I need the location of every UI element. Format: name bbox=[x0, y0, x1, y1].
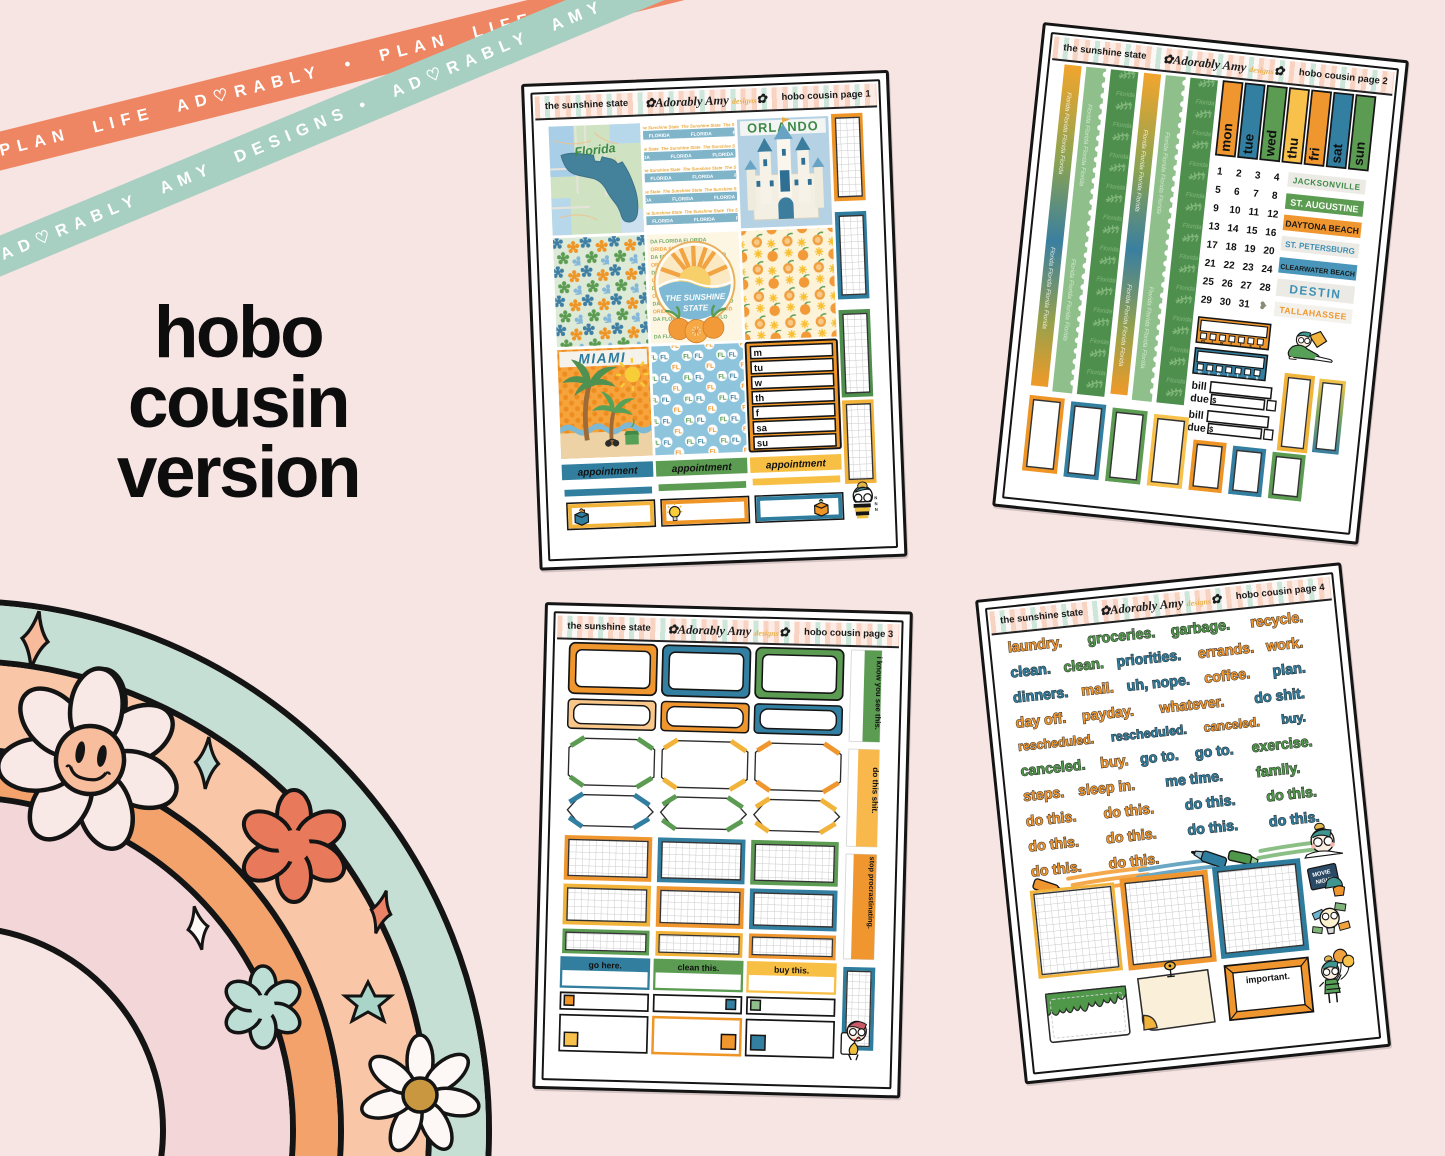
svg-text:6: 6 bbox=[1233, 187, 1240, 199]
svg-text:23: 23 bbox=[1242, 262, 1255, 274]
svg-text:bill: bill bbox=[1188, 408, 1204, 422]
svg-text:11: 11 bbox=[1248, 207, 1260, 219]
svg-text:do this shit.: do this shit. bbox=[870, 767, 880, 813]
svg-text:canceled.: canceled. bbox=[1020, 757, 1086, 780]
svg-text:21: 21 bbox=[1204, 258, 1217, 270]
svg-text:bill: bill bbox=[1191, 379, 1207, 393]
svg-text:su: su bbox=[757, 438, 769, 450]
svg-text:steps.: steps. bbox=[1022, 785, 1065, 805]
svg-text:appointment: appointment bbox=[577, 465, 638, 478]
svg-text:FLORIDA: FLORIDA bbox=[650, 175, 672, 182]
svg-text:errands.: errands. bbox=[1197, 640, 1255, 662]
svg-text:groceries.: groceries. bbox=[1087, 625, 1156, 648]
svg-text:canceled.: canceled. bbox=[1203, 715, 1261, 735]
svg-text:19: 19 bbox=[1244, 243, 1257, 255]
svg-text:day off.: day off. bbox=[1015, 710, 1067, 731]
svg-text:4: 4 bbox=[1273, 172, 1280, 184]
svg-text:wed: wed bbox=[1262, 129, 1280, 158]
svg-text:w: w bbox=[753, 378, 762, 389]
svg-text:me time.: me time. bbox=[1165, 769, 1224, 791]
svg-text:whatever.: whatever. bbox=[1158, 694, 1225, 717]
svg-text:FLORIDA: FLORIDA bbox=[692, 174, 714, 181]
svg-text:coffee.: coffee. bbox=[1204, 666, 1251, 687]
svg-text:FLORIDA: FLORIDA bbox=[691, 131, 713, 138]
svg-text:29: 29 bbox=[1200, 294, 1213, 306]
svg-text:12: 12 bbox=[1267, 209, 1280, 221]
svg-text:clean this.: clean this. bbox=[677, 962, 719, 973]
svg-text:31: 31 bbox=[1238, 298, 1251, 310]
svg-text:25: 25 bbox=[1202, 276, 1215, 288]
svg-text:5: 5 bbox=[1215, 185, 1222, 197]
svg-text:tue: tue bbox=[1240, 132, 1257, 154]
svg-text:buy.: buy. bbox=[1099, 753, 1129, 772]
svg-text:28: 28 bbox=[1259, 282, 1272, 294]
svg-text:m: m bbox=[1201, 338, 1205, 343]
svg-text:17: 17 bbox=[1206, 239, 1219, 251]
svg-text:18: 18 bbox=[1225, 241, 1238, 253]
svg-text:appointment: appointment bbox=[672, 462, 733, 475]
svg-text:plan.: plan. bbox=[1272, 660, 1307, 679]
svg-text:NO: NO bbox=[874, 501, 878, 506]
svg-text:NO: NO bbox=[875, 507, 878, 512]
svg-text:1: 1 bbox=[1216, 166, 1223, 178]
svg-text:go to.: go to. bbox=[1194, 742, 1234, 762]
svg-text:m: m bbox=[1198, 369, 1202, 374]
svg-text:tu: tu bbox=[754, 363, 764, 374]
svg-text:do this.: do this. bbox=[1187, 818, 1239, 839]
svg-text:FLORIDA: FLORIDA bbox=[712, 152, 734, 159]
svg-text:go to.: go to. bbox=[1139, 748, 1179, 768]
svg-text:exercise.: exercise. bbox=[1251, 734, 1313, 756]
svg-text:family.: family. bbox=[1255, 761, 1301, 782]
svg-text:clean.: clean. bbox=[1063, 656, 1105, 676]
svg-text:do this.: do this. bbox=[1268, 809, 1320, 830]
svg-text:due: due bbox=[1187, 421, 1207, 435]
svg-text:sleep in.: sleep in. bbox=[1077, 778, 1135, 800]
svg-text:laundry.: laundry. bbox=[1007, 635, 1063, 657]
svg-text:9: 9 bbox=[1213, 203, 1220, 215]
svg-text:work.: work. bbox=[1264, 635, 1304, 655]
svg-text:22: 22 bbox=[1223, 260, 1236, 272]
svg-text:26: 26 bbox=[1221, 278, 1234, 290]
svg-text:recycle.: recycle. bbox=[1249, 610, 1303, 632]
svg-text:24: 24 bbox=[1261, 264, 1274, 276]
svg-text:stop procrastinating.: stop procrastinating. bbox=[866, 856, 877, 929]
svg-text:dinners.: dinners. bbox=[1012, 685, 1069, 707]
svg-text:FLORIDA: FLORIDA bbox=[694, 217, 716, 224]
svg-text:priorities.: priorities. bbox=[1116, 648, 1182, 671]
svg-text:due: due bbox=[1190, 392, 1210, 406]
svg-text:mail.: mail. bbox=[1080, 680, 1114, 699]
svg-text:FLORIDA: FLORIDA bbox=[714, 194, 736, 201]
svg-text:do this.: do this. bbox=[1184, 793, 1236, 814]
svg-text:sat: sat bbox=[1328, 142, 1345, 164]
svg-text:do shit.: do shit. bbox=[1253, 686, 1305, 707]
svg-text:FLORIDA: FLORIDA bbox=[649, 133, 671, 140]
svg-text:7: 7 bbox=[1252, 189, 1259, 201]
svg-text:go here.: go here. bbox=[588, 960, 622, 971]
svg-text:appointment: appointment bbox=[766, 458, 827, 471]
svg-text:buy this.: buy this. bbox=[774, 965, 809, 976]
svg-text:3: 3 bbox=[1254, 170, 1261, 182]
svg-text:m: m bbox=[753, 348, 762, 359]
svg-text:buy.: buy. bbox=[1281, 710, 1307, 727]
svg-text:rescheduled.: rescheduled. bbox=[1017, 732, 1094, 754]
svg-text:uh, nope.: uh, nope. bbox=[1126, 672, 1191, 695]
svg-text:do this.: do this. bbox=[1025, 809, 1077, 830]
svg-text:FLORIDA: FLORIDA bbox=[672, 196, 694, 203]
svg-text:15: 15 bbox=[1246, 225, 1259, 237]
svg-text:do this.: do this. bbox=[1266, 784, 1318, 805]
svg-text:payday.: payday. bbox=[1081, 703, 1134, 724]
svg-text:do this.: do this. bbox=[1103, 801, 1155, 822]
svg-text:❥: ❥ bbox=[1258, 301, 1267, 313]
svg-text:garbage.: garbage. bbox=[1170, 617, 1231, 639]
svg-text:FLORIDA: FLORIDA bbox=[670, 153, 692, 160]
svg-text:th: th bbox=[755, 393, 765, 404]
svg-text:STATE: STATE bbox=[683, 303, 709, 313]
svg-text:MIAMI: MIAMI bbox=[578, 349, 626, 367]
svg-text:do this.: do this. bbox=[1028, 834, 1080, 855]
svg-text:8: 8 bbox=[1271, 191, 1278, 203]
svg-text:2: 2 bbox=[1235, 168, 1242, 180]
svg-text:16: 16 bbox=[1265, 227, 1278, 239]
svg-text:The Sunshine State: The Sunshine State bbox=[704, 186, 744, 193]
svg-text:clean.: clean. bbox=[1010, 661, 1052, 681]
svg-text:FLORIDA: FLORIDA bbox=[652, 218, 674, 225]
svg-text:mon: mon bbox=[1218, 122, 1236, 152]
svg-text:13: 13 bbox=[1208, 221, 1221, 233]
svg-text:rescheduled.: rescheduled. bbox=[1110, 722, 1187, 744]
svg-text:fri: fri bbox=[1306, 147, 1322, 162]
svg-text:10: 10 bbox=[1229, 205, 1242, 217]
svg-text:The Sunshine State: The Sunshine State bbox=[703, 143, 743, 150]
svg-text:NO: NO bbox=[874, 495, 878, 500]
svg-text:thu: thu bbox=[1284, 137, 1301, 160]
svg-text:27: 27 bbox=[1240, 280, 1253, 292]
svg-text:20: 20 bbox=[1263, 245, 1276, 257]
svg-text:sun: sun bbox=[1351, 141, 1368, 167]
svg-text:sa: sa bbox=[756, 423, 768, 435]
svg-text:14: 14 bbox=[1227, 223, 1240, 235]
svg-text:do this.: do this. bbox=[1105, 826, 1157, 847]
svg-text:30: 30 bbox=[1219, 296, 1232, 308]
